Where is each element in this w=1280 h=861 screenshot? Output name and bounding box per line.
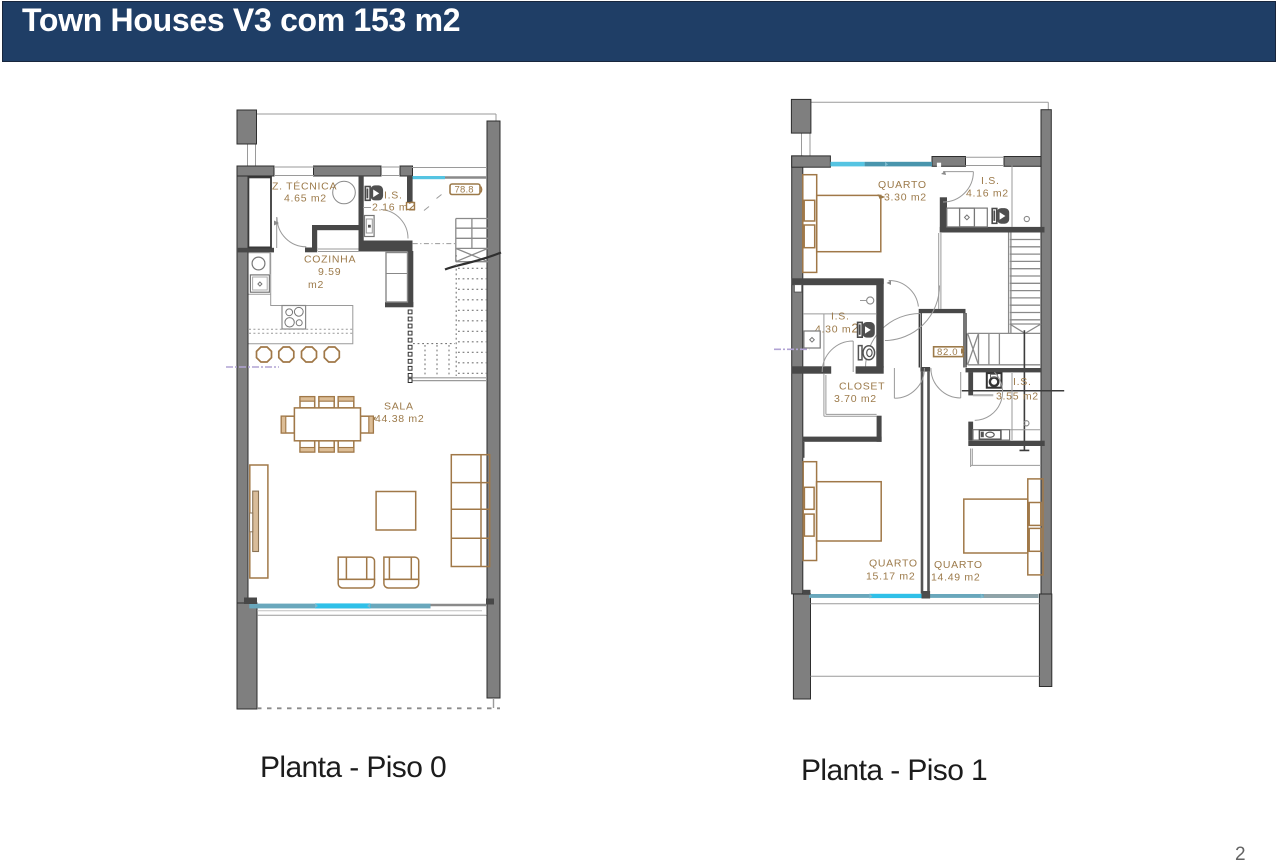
svg-text:3.70 m2: 3.70 m2: [834, 393, 877, 405]
svg-text:I.S.: I.S.: [384, 190, 403, 202]
svg-text:3.30 m2: 3.30 m2: [884, 192, 927, 204]
svg-text:I.S.: I.S.: [1013, 376, 1032, 388]
svg-text:4.30 m2: 4.30 m2: [815, 321, 859, 336]
svg-text:14.49 m2: 14.49 m2: [931, 572, 980, 584]
svg-text:COZINHA: COZINHA: [304, 254, 356, 266]
svg-text:4.16 m2: 4.16 m2: [966, 188, 1009, 200]
svg-text:44.38 m2: 44.38 m2: [375, 413, 424, 425]
svg-text:QUARTO: QUARTO: [878, 179, 927, 191]
svg-text:QUARTO: QUARTO: [869, 558, 918, 570]
svg-text:2.16 m2: 2.16 m2: [372, 199, 416, 214]
svg-text:CLOSET: CLOSET: [839, 381, 885, 393]
svg-text:I.S.: I.S.: [831, 311, 850, 323]
svg-text:82.0: 82.0: [937, 347, 958, 358]
svg-text:9.59: 9.59: [318, 266, 341, 278]
svg-text:78.8: 78.8: [455, 184, 474, 195]
svg-text:Z. TÉCNICA: Z. TÉCNICA: [272, 180, 337, 193]
svg-text:QUARTO: QUARTO: [934, 559, 983, 571]
svg-text:SALA: SALA: [384, 401, 414, 413]
svg-text:15.17 m2: 15.17 m2: [866, 571, 915, 583]
svg-text:4.65 m2: 4.65 m2: [284, 193, 327, 205]
svg-text:m2: m2: [308, 279, 324, 291]
svg-text:I.S.: I.S.: [981, 175, 1000, 187]
